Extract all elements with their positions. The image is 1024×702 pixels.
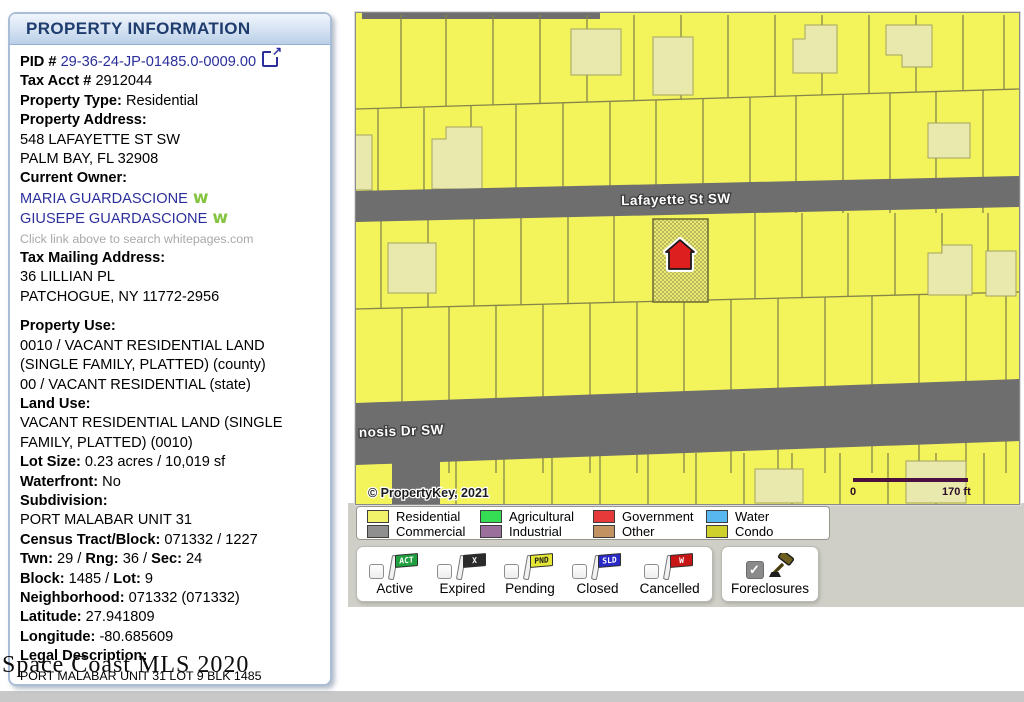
filter-label: Active (376, 581, 413, 596)
parcel-map-canvas: Lafayette St SW nosis Dr SW © PropertyKe… (356, 13, 1019, 504)
owner-2: GIUSEPE GUARDASCIONEw (20, 209, 320, 229)
seg-hint: Click link above to search whitepages.co… (20, 232, 253, 246)
property-type-line: Property Type: Residential (20, 92, 320, 111)
subdivision-label: Subdivision: (20, 492, 320, 511)
active-flag-icon: ACT (387, 553, 420, 580)
scale-end-label: 170 ft (942, 486, 971, 498)
legend-swatch-industrial (480, 525, 502, 538)
latitude-line: Latitude: 27.941809 (20, 608, 320, 627)
property-use-label: Property Use: (20, 317, 320, 336)
property-use-3: 00 / VACANT RESIDENTIAL (state) (20, 376, 320, 395)
tax-acct-line: Tax Acct # 2912044 (20, 72, 320, 91)
property-address-1: 548 LAFAYETTE ST SW (20, 131, 320, 150)
seg-label: Latitude: (20, 609, 86, 625)
filter-label: Pending (505, 581, 555, 596)
road-top-edge (362, 13, 600, 19)
map-attribution: © PropertyKey, 2021 (368, 486, 489, 500)
expired-flag-icon: X (455, 553, 488, 580)
filter-label: Cancelled (640, 581, 700, 596)
legend-swatch-water (706, 510, 728, 523)
external-link-icon[interactable]: ↗ (262, 51, 278, 67)
land-use-1: VACANT RESIDENTIAL LAND (SINGLE (20, 414, 320, 433)
block-lot-line: Block: 1485 / Lot: 9 (20, 570, 320, 589)
street-label-lafayette: Lafayette St SW (621, 191, 731, 208)
seg-value: PORT MALABAR UNIT 31 (20, 512, 192, 528)
flag-face: PND (530, 552, 553, 567)
seg-value: FAMILY, PLATTED) (0010) (20, 435, 193, 451)
seg-label: Longitude: (20, 629, 99, 645)
seg-label: Lot: (113, 571, 145, 587)
twn-rng-sec-line: Twn: 29 / Rng: 36 / Sec: 24 (20, 550, 320, 569)
flag-face: ACT (395, 552, 418, 567)
filter-pending[interactable]: PNDPending (504, 553, 555, 596)
seg-value: Residential (126, 93, 198, 109)
pid-line: PID # 29-36-24-JP-01485.0-0009.00↗ (20, 51, 320, 72)
seg-value: 071332 / 1227 (164, 532, 257, 548)
legend-swatch-government (593, 510, 615, 523)
cancelled-flag-icon: W (662, 553, 695, 580)
whitepages-hint: Click link above to search whitepages.co… (20, 230, 320, 249)
owner-giusepe-link[interactable]: GIUSEPE GUARDASCIONE (20, 211, 207, 227)
legend-swatch-agricultural (480, 510, 502, 523)
legend-label: Other (622, 524, 655, 539)
seg-label: Property Type: (20, 93, 126, 109)
seg-label: Waterfront: (20, 474, 102, 490)
panel-title: PROPERTY INFORMATION (26, 19, 251, 39)
closed-checkbox[interactable] (572, 564, 587, 579)
flag-face: W (670, 552, 693, 567)
legend-label: Government (622, 509, 694, 524)
legend-swatch-commercial (367, 525, 389, 538)
legend-swatch-other (593, 525, 615, 538)
legend-label: Residential (396, 509, 460, 524)
seg-value: VACANT RESIDENTIAL LAND (SINGLE (20, 415, 282, 431)
seg-value: 9 (145, 571, 153, 587)
scale-start-label: 0 (850, 486, 856, 498)
legend-swatch-condo (706, 525, 728, 538)
seg-value: 00 / VACANT RESIDENTIAL (state) (20, 377, 251, 393)
seg-label: Block: (20, 571, 69, 587)
whitepages-icon[interactable]: w (212, 208, 228, 228)
property-information-panel: PROPERTY INFORMATION PID # 29-36-24-JP-0… (8, 12, 332, 686)
legend-item-commercial: Commercial (367, 524, 480, 539)
seg-value: -80.685609 (99, 629, 173, 645)
foreclosures-filter[interactable]: ✓ Foreclosures (721, 546, 819, 602)
current-owner-label: Current Owner: (20, 169, 320, 188)
seg-label: PID # (20, 54, 61, 70)
legend-item-government: Government (593, 509, 706, 524)
subdivision-value: PORT MALABAR UNIT 31 (20, 511, 320, 530)
neighborhood-line: Neighborhood: 071332 (071332) (20, 589, 320, 608)
foreclosures-checkbox[interactable]: ✓ (746, 561, 764, 579)
expired-checkbox[interactable] (437, 564, 452, 579)
owner-1: MARIA GUARDASCIONEw (20, 189, 320, 209)
filter-expired[interactable]: XExpired (437, 553, 488, 596)
legend-label: Industrial (509, 524, 562, 539)
seg-value: 24 (186, 551, 202, 567)
legend-item-residential: Residential (367, 509, 480, 524)
land-use-label: Land Use: (20, 395, 320, 414)
panel-header: PROPERTY INFORMATION (10, 14, 330, 45)
parcel-map[interactable]: Lafayette St SW nosis Dr SW © PropertyKe… (355, 12, 1020, 505)
seg-value: 27.941809 (86, 609, 155, 625)
property-address-label: Property Address: (20, 111, 320, 130)
seg-label: Census Tract/Block: (20, 532, 164, 548)
seg-label: Land Use: (20, 396, 91, 412)
seg-value: 29 / (57, 551, 85, 567)
gavel-icon (767, 553, 795, 580)
closed-flag-icon: SLD (590, 553, 623, 580)
seg-value: 0010 / VACANT RESIDENTIAL LAND (20, 338, 265, 354)
legend-item-agricultural: Agricultural (480, 509, 593, 524)
map-legend: ResidentialCommercialAgriculturalIndustr… (356, 506, 830, 540)
seg-label: Lot Size: (20, 454, 85, 470)
filter-active[interactable]: ACTActive (369, 553, 420, 596)
mailing-address-1: 36 LILLIAN PL (20, 268, 320, 287)
seg-value: 071332 (071332) (129, 590, 240, 606)
street-label-nosis: nosis Dr SW (359, 422, 444, 440)
seg-value: No (102, 474, 121, 490)
cancelled-checkbox[interactable] (644, 564, 659, 579)
seg-label: Tax Acct # (20, 73, 95, 89)
pending-checkbox[interactable] (504, 564, 519, 579)
census-line: Census Tract/Block: 071332 / 1227 (20, 531, 320, 550)
legend-item-water: Water (706, 509, 819, 524)
status-filters: ACTActiveXExpiredPNDPendingSLDClosedWCan… (356, 546, 713, 602)
legend-label: Condo (735, 524, 773, 539)
seg-value: 0.23 acres / 10,019 sf (85, 454, 225, 470)
mailing-address-2: PATCHOGUE, NY 11772-2956 (20, 288, 320, 307)
seg-value: 1485 / (69, 571, 114, 587)
seg-label: Rng: (85, 551, 122, 567)
panel-body: PID # 29-36-24-JP-01485.0-0009.00↗Tax Ac… (10, 45, 330, 686)
legend-label: Commercial (396, 524, 465, 539)
filter-cancelled[interactable]: WCancelled (640, 553, 700, 596)
pending-flag-icon: PND (522, 553, 555, 580)
tax-mailing-label: Tax Mailing Address: (20, 249, 320, 268)
seg-label: Tax Mailing Address: (20, 250, 165, 266)
pid-link[interactable]: 29-36-24-JP-01485.0-0009.00 (61, 54, 257, 70)
seg-value: PALM BAY, FL 32908 (20, 151, 158, 167)
legend-item-condo: Condo (706, 524, 819, 539)
legend-swatch-residential (367, 510, 389, 523)
legend-label: Water (735, 509, 769, 524)
land-use-2: FAMILY, PLATTED) (0010) (20, 434, 320, 453)
foreclosures-label: Foreclosures (731, 581, 809, 596)
seg-label: Neighborhood: (20, 590, 129, 606)
waterfront-line: Waterfront: No (20, 473, 320, 492)
filter-label: Closed (577, 581, 619, 596)
seg-label: Twn: (20, 551, 57, 567)
longitude-line: Longitude: -80.685609 (20, 628, 320, 647)
seg-value: 2912044 (95, 73, 152, 89)
seg-label: Property Use: (20, 318, 116, 334)
property-use-1: 0010 / VACANT RESIDENTIAL LAND (20, 337, 320, 356)
seg-label: Current Owner: (20, 170, 127, 186)
legend-item-industrial: Industrial (480, 524, 593, 539)
flag-face: X (463, 552, 486, 567)
whitepages-icon[interactable]: w (193, 188, 209, 208)
seg-label: Sec: (151, 551, 186, 567)
seg-value: (SINGLE FAMILY, PLATTED) (county) (20, 357, 266, 373)
legend-label: Agricultural (509, 509, 574, 524)
filter-label: Expired (439, 581, 485, 596)
seg-value: 36 LILLIAN PL (20, 269, 115, 285)
lot-size-line: Lot Size: 0.23 acres / 10,019 sf (20, 453, 320, 472)
seg-value: PATCHOGUE, NY 11772-2956 (20, 289, 219, 305)
seg-label: Property Address: (20, 112, 147, 128)
seg-label: Subdivision: (20, 493, 108, 509)
seg-value: 36 / (123, 551, 151, 567)
watermark: Space Coast MLS 2020 (2, 652, 249, 679)
legend-item-other: Other (593, 524, 706, 539)
owner-maria-link[interactable]: MARIA GUARDASCIONE (20, 191, 188, 207)
property-address-2: PALM BAY, FL 32908 (20, 150, 320, 169)
flag-face: SLD (598, 552, 621, 567)
bottom-strip (0, 691, 1024, 702)
active-checkbox[interactable] (369, 564, 384, 579)
filter-closed[interactable]: SLDClosed (572, 553, 623, 596)
seg-value: 548 LAFAYETTE ST SW (20, 132, 180, 148)
property-use-2: (SINGLE FAMILY, PLATTED) (county) (20, 356, 320, 375)
